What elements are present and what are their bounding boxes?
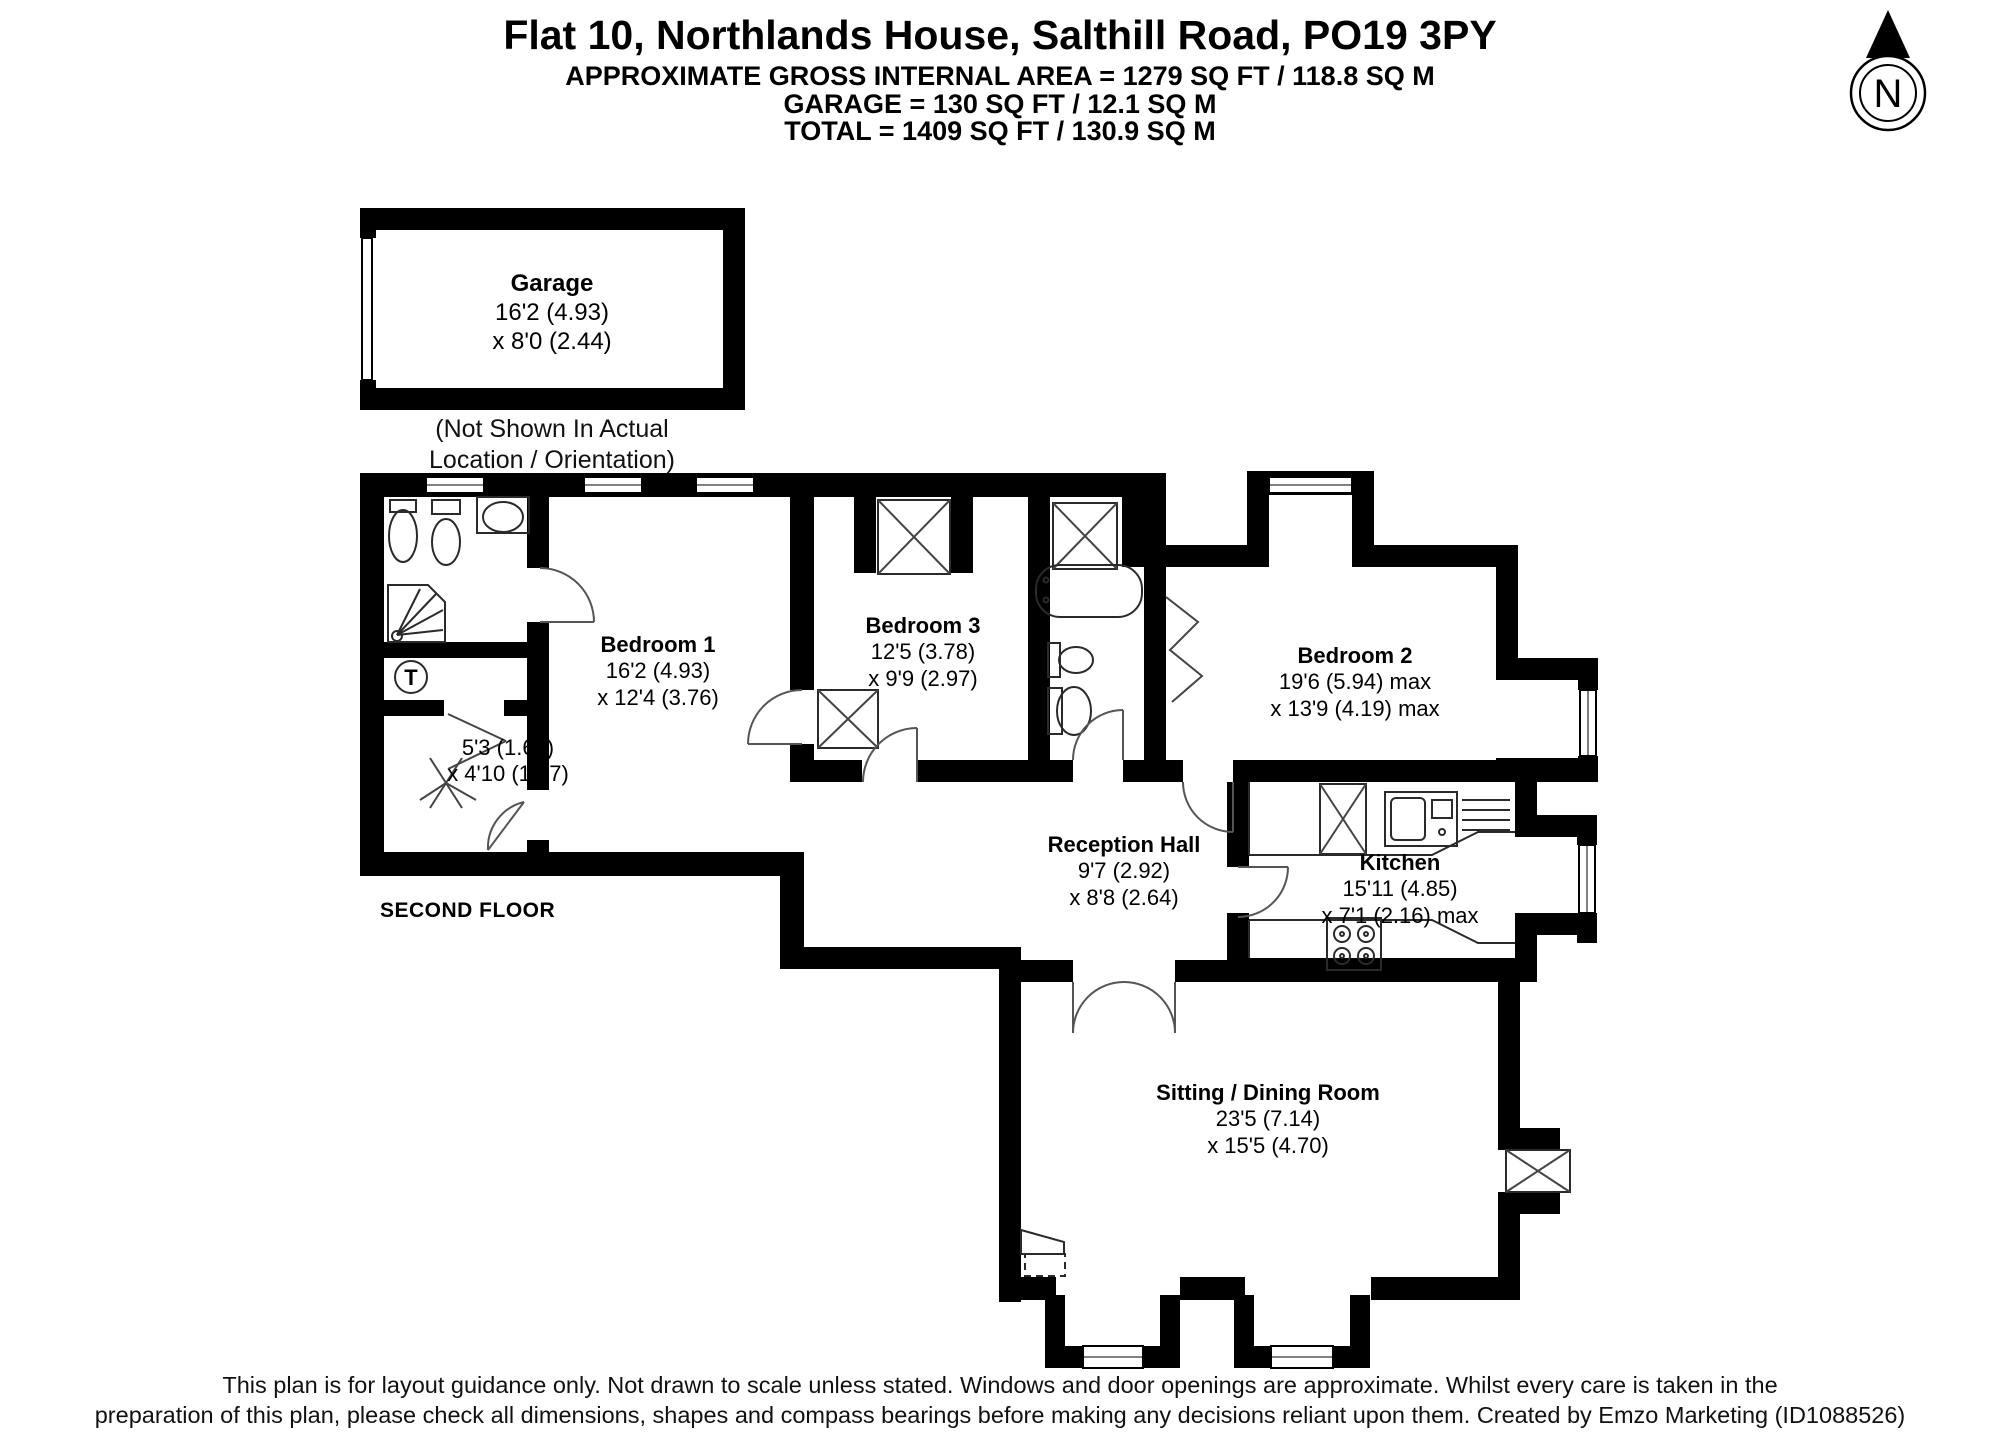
kitchen-door [1238, 867, 1288, 917]
dryer-icon: T [395, 661, 427, 693]
sitting-dining-label: Sitting / Dining Room 23'5 (7.14) x 15'5… [1156, 1080, 1380, 1159]
bedroom3-dormer-xbox [878, 500, 950, 574]
floor-plan-drawing: N [0, 0, 2000, 1456]
bedroom3-label: Bedroom 3 12'5 (3.78) x 9'9 (2.97) [866, 613, 981, 692]
reception-hall-label: Reception Hall 9'7 (2.92) x 8'8 (2.64) [1048, 832, 1201, 911]
kitchen-unit-xbox [1320, 784, 1366, 854]
kitchen-label: Kitchen 15'11 (4.85) x 7'1 (2.16) max [1321, 850, 1478, 929]
ensuite-door [540, 568, 594, 622]
disclaimer-line-1: This plan is for layout guidance only. N… [0, 1372, 2000, 1399]
fireplace-icon [1021, 1230, 1065, 1276]
bath-icon [1036, 565, 1142, 617]
shower-icon [388, 585, 445, 642]
bathroom-dormer-xbox [1053, 503, 1117, 569]
total-area-line: TOTAL = 1409 SQ FT / 130.9 SQ M [0, 116, 2000, 147]
gross-area-line: APPROXIMATE GROSS INTERNAL AREA = 1279 S… [0, 61, 2000, 92]
disclaimer-line-2: preparation of this plan, please check a… [0, 1402, 2000, 1429]
sitting-room-window-seat-xbox [1506, 1150, 1570, 1192]
bedroom2-label: Bedroom 2 19'6 (5.94) max x 13'9 (4.19) … [1270, 643, 1439, 722]
sloped-ceiling-zigzag [1166, 597, 1202, 702]
bedroom3-wardrobe-xbox [818, 690, 878, 748]
kitchen-sink-icon [1385, 792, 1510, 846]
sitting-room-double-doors [1073, 982, 1175, 1033]
storage-dims-label: 5'3 (1.60) x 4'10 (1.47) [447, 735, 569, 788]
floor-level-label: SECOND FLOOR [380, 899, 555, 923]
garage-note: (Not Shown In Actual Location / Orientat… [429, 414, 675, 477]
garage-door [362, 238, 372, 380]
bathroom-door [1073, 710, 1123, 760]
dryer-t-label: T [404, 665, 418, 690]
bedroom1-label: Bedroom 1 16'2 (4.93) x 12'4 (3.76) [597, 632, 719, 711]
basin-icon [477, 497, 529, 533]
bathroom-fixtures [1036, 565, 1142, 735]
ensuite-fixtures: T [388, 497, 529, 693]
storage-door [488, 802, 524, 850]
bidet-icon [389, 500, 417, 562]
garage-label: Garage 16'2 (4.93) x 8'0 (2.44) [492, 270, 611, 356]
floorplan-page: N [0, 0, 2000, 1456]
toilet-icon [432, 500, 460, 565]
page-title: Flat 10, Northlands House, Salthill Road… [0, 12, 2000, 59]
toilet-icon [1048, 643, 1093, 677]
bedroom1-door [748, 690, 802, 744]
bedroom2-door [1183, 782, 1233, 832]
